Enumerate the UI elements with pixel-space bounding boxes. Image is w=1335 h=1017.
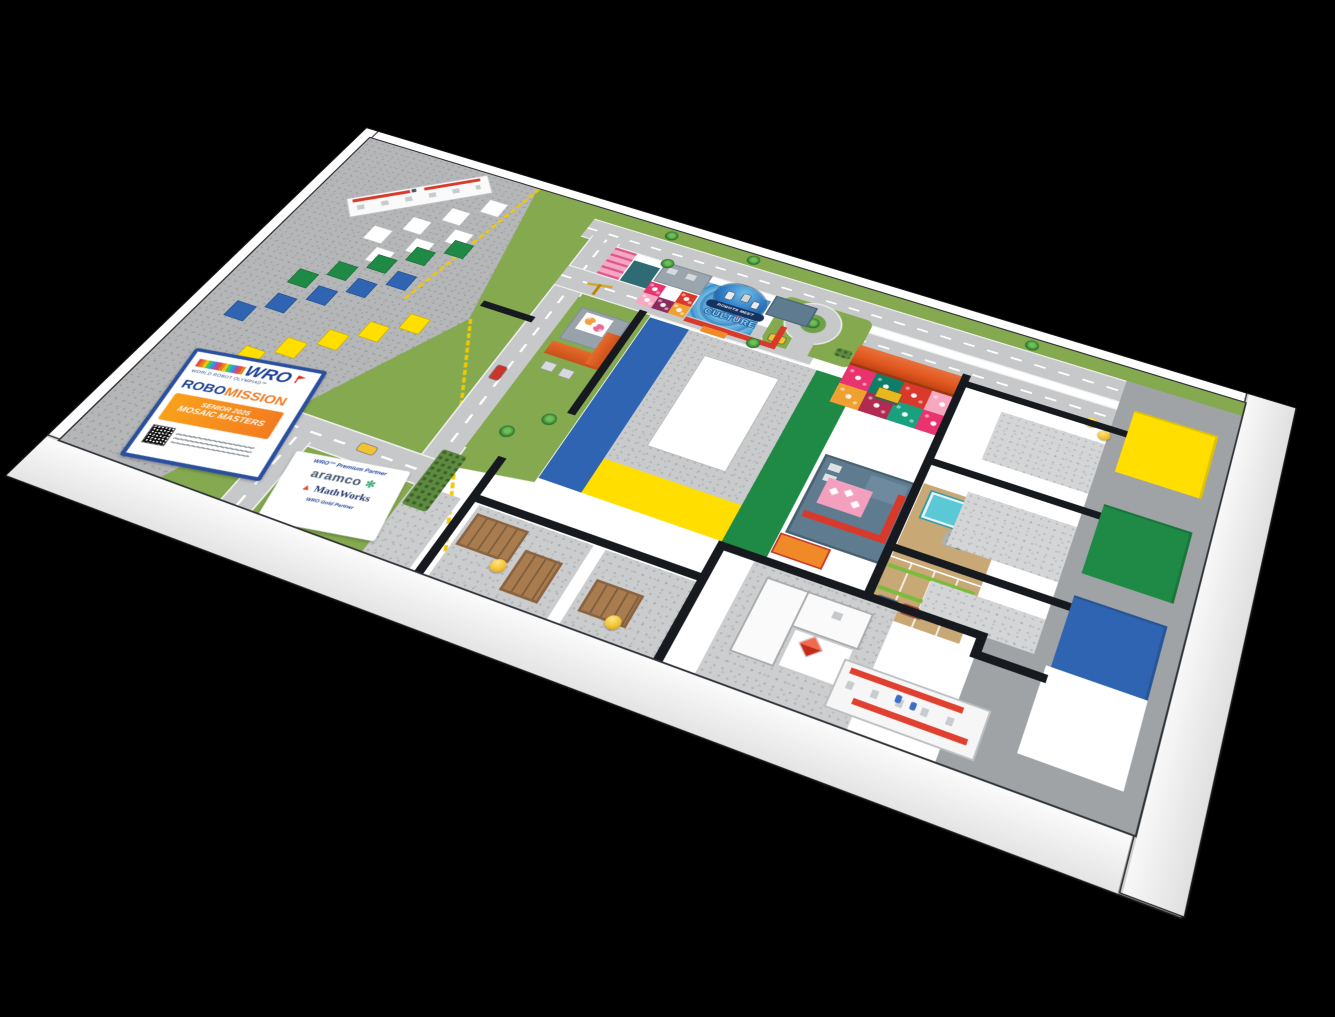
aramco-star-icon: ✻	[363, 478, 379, 491]
competition-table: ROBOTS MEET CULTURE	[60, 138, 1245, 835]
palm-tree-icon	[539, 412, 560, 427]
roof-vent	[540, 360, 558, 372]
roof-vent	[557, 368, 575, 380]
diamond-tile	[850, 501, 860, 509]
game-mat: ROBOTS MEET CULTURE	[60, 138, 1245, 835]
robot-figure	[411, 189, 416, 193]
roof-vent	[685, 273, 697, 281]
diamond-tile	[829, 488, 839, 495]
diamond-tile	[844, 489, 854, 497]
palm-tree-icon	[496, 424, 517, 439]
qr-caption-lines	[170, 432, 255, 458]
roof-vent	[827, 463, 842, 473]
roof-vent	[666, 268, 678, 276]
skylight	[831, 611, 843, 621]
wro-flag-icon	[294, 375, 307, 384]
